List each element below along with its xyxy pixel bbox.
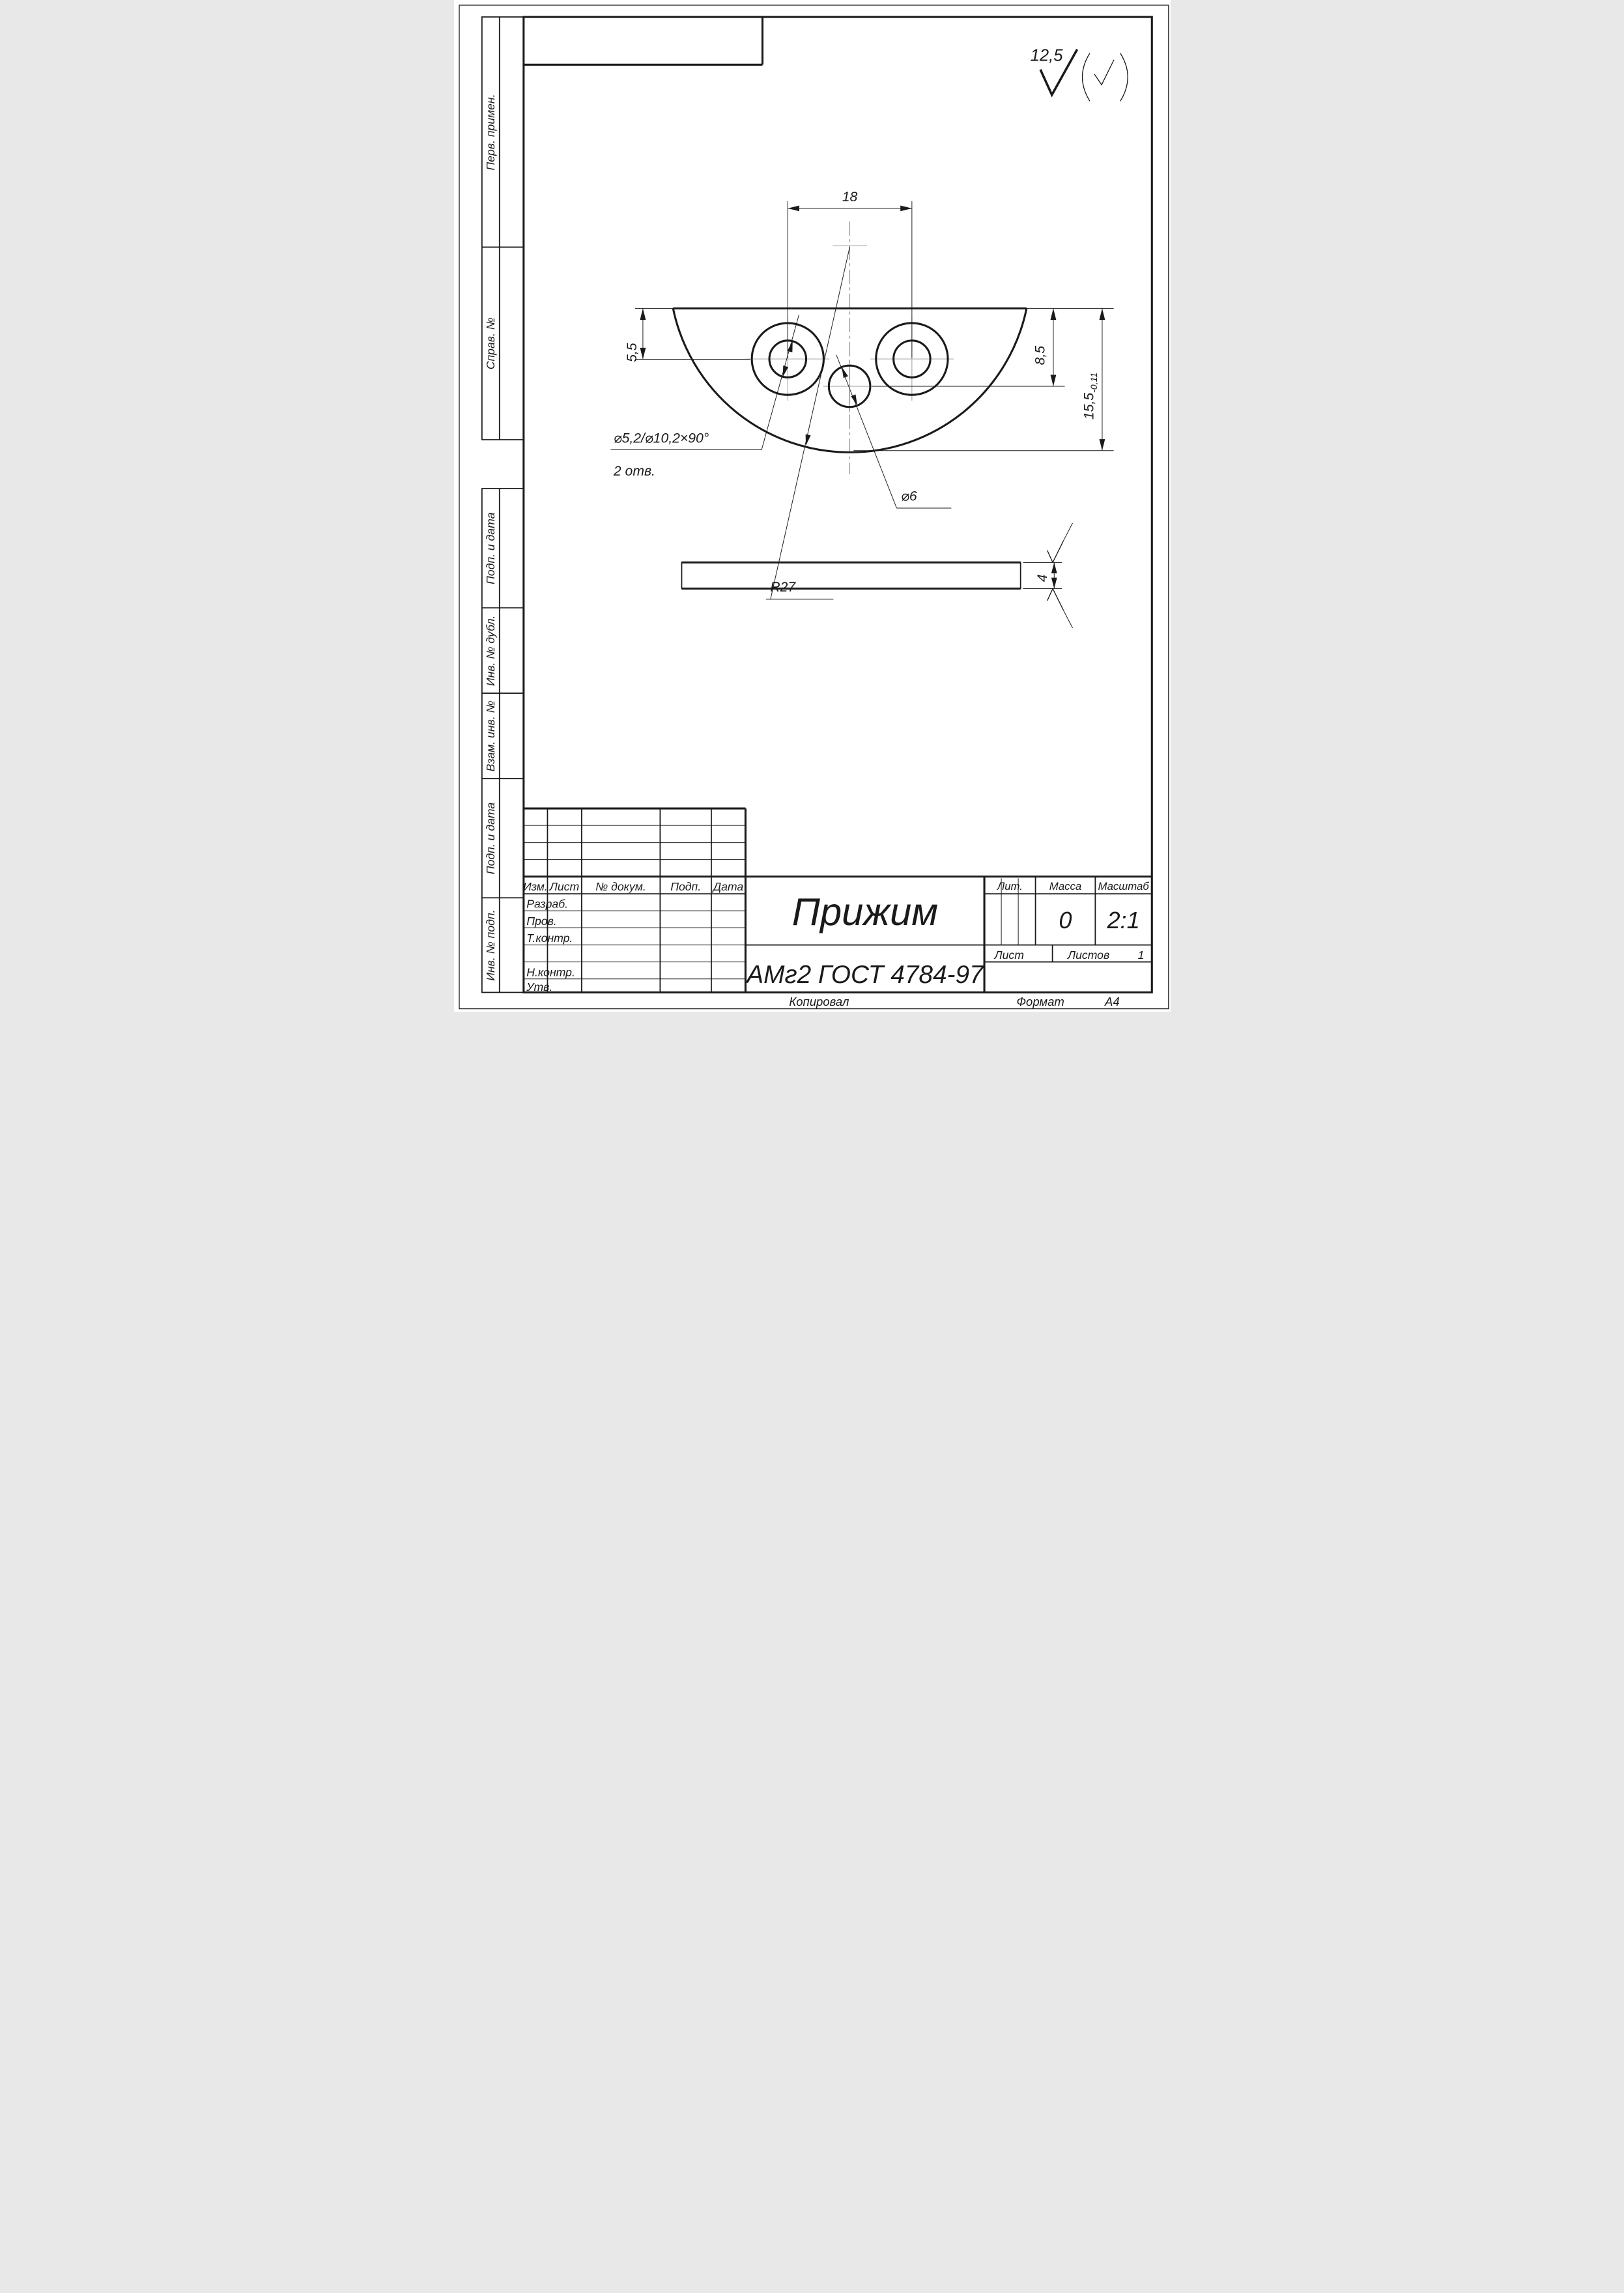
mass-value: 0	[1059, 907, 1072, 933]
rev-header-doc: № докум.	[595, 880, 646, 893]
main-view: 18 5,5 8,5 15,5-0,11	[610, 190, 1113, 599]
rev-header-sign: Подп.	[670, 880, 701, 893]
rev-header-izm: Изм.	[523, 880, 548, 893]
sidebar-label-inv-dubl: Инв. № дубл.	[483, 616, 496, 686]
paren-right	[1120, 53, 1127, 102]
paper-border	[459, 5, 1168, 1009]
sheets-value: 1	[1137, 948, 1144, 961]
scale-value: 2:1	[1106, 907, 1139, 933]
footer-format-label: Формат	[1016, 995, 1064, 1008]
roughness-mark-top-icon	[1047, 523, 1072, 562]
side-view: 4	[681, 523, 1072, 628]
rev-header-list: Лист	[548, 880, 578, 893]
role-developed: Разраб.	[526, 897, 568, 910]
sidebar-label-podp-data-1: Подп. и дата	[483, 512, 496, 584]
sidebar-label-podp-data-2: Подп. и дата	[483, 803, 496, 875]
sidebar-label-perv-primen: Перв. примен.	[483, 94, 496, 170]
sidebar-top-group: Перв. примен. Справ. №	[481, 17, 523, 440]
leader-counterbore: ⌀5,2/⌀10,2×90° 2 отв.	[610, 315, 799, 479]
main-frame	[523, 17, 1151, 992]
sidebar-label-sprav-no: Справ. №	[483, 317, 496, 369]
dim-8-5: 8,5	[872, 308, 1113, 386]
label-radius: R27	[770, 580, 796, 595]
sheets-label: Листов	[1067, 948, 1109, 961]
role-tcontrol: Т.контр.	[526, 932, 573, 945]
sidebar-bottom-group: Подп. и дата Инв. № дубл. Взам. инв. № П…	[481, 489, 523, 992]
material: АМг2 ГОСТ 4784-97	[745, 961, 984, 989]
leader-radius: R27	[765, 247, 849, 599]
roughness-value: 12,5	[1030, 47, 1063, 65]
role-approved: Утв.	[526, 980, 552, 993]
roughness-mark-bottom-icon	[1047, 589, 1072, 628]
scale-label: Масштаб	[1098, 880, 1149, 892]
general-roughness: 12,5	[1030, 47, 1128, 102]
top-designation-box	[523, 17, 762, 64]
label-center-hole: ⌀6	[901, 489, 917, 504]
role-ncontrol: Н.контр.	[526, 965, 575, 978]
dim-8-5-value: 8,5	[1033, 346, 1047, 365]
sidebar-label-vzam-inv: Взам. инв. №	[483, 700, 496, 771]
part-name: Прижим	[791, 890, 937, 933]
label-counterbore-qty: 2 отв.	[612, 464, 655, 479]
label-counterbore: ⌀5,2/⌀10,2×90°	[613, 431, 708, 446]
lit-label: Лит.	[996, 880, 1022, 892]
rev-header-date: Дата	[711, 880, 743, 893]
footer-copied: Копировал	[789, 995, 849, 1008]
footer-notes: Копировал Формат А4	[789, 995, 1119, 1008]
sheet-label: Лист	[993, 948, 1023, 961]
side-view-outline	[681, 562, 1020, 588]
gost-drawing-svg: Перв. примен. Справ. № Подп. и дата Инв.…	[454, 0, 1171, 1012]
dim-4-value: 4	[1034, 575, 1049, 582]
dim-4: 4	[1023, 562, 1062, 588]
sidebar-label-inv-podl: Инв. № подп.	[483, 910, 496, 981]
drawing-sheet: Перв. примен. Справ. № Подп. и дата Инв.…	[454, 0, 1171, 1012]
dim-5-5: 5,5	[625, 308, 750, 362]
role-checked: Пров.	[526, 915, 556, 928]
footer-format-value: А4	[1104, 995, 1120, 1008]
roughness-check-small-icon	[1094, 60, 1114, 85]
dim-5-5-value: 5,5	[625, 343, 640, 362]
dim-15-5-value: 15,5-0,11	[1081, 373, 1098, 420]
dim-18-value: 18	[842, 190, 857, 205]
title-block: Изм. Лист № докум. Подп. Дата Разраб. Пр…	[523, 808, 1152, 993]
paren-left	[1082, 53, 1089, 102]
mass-label: Масса	[1049, 880, 1081, 892]
